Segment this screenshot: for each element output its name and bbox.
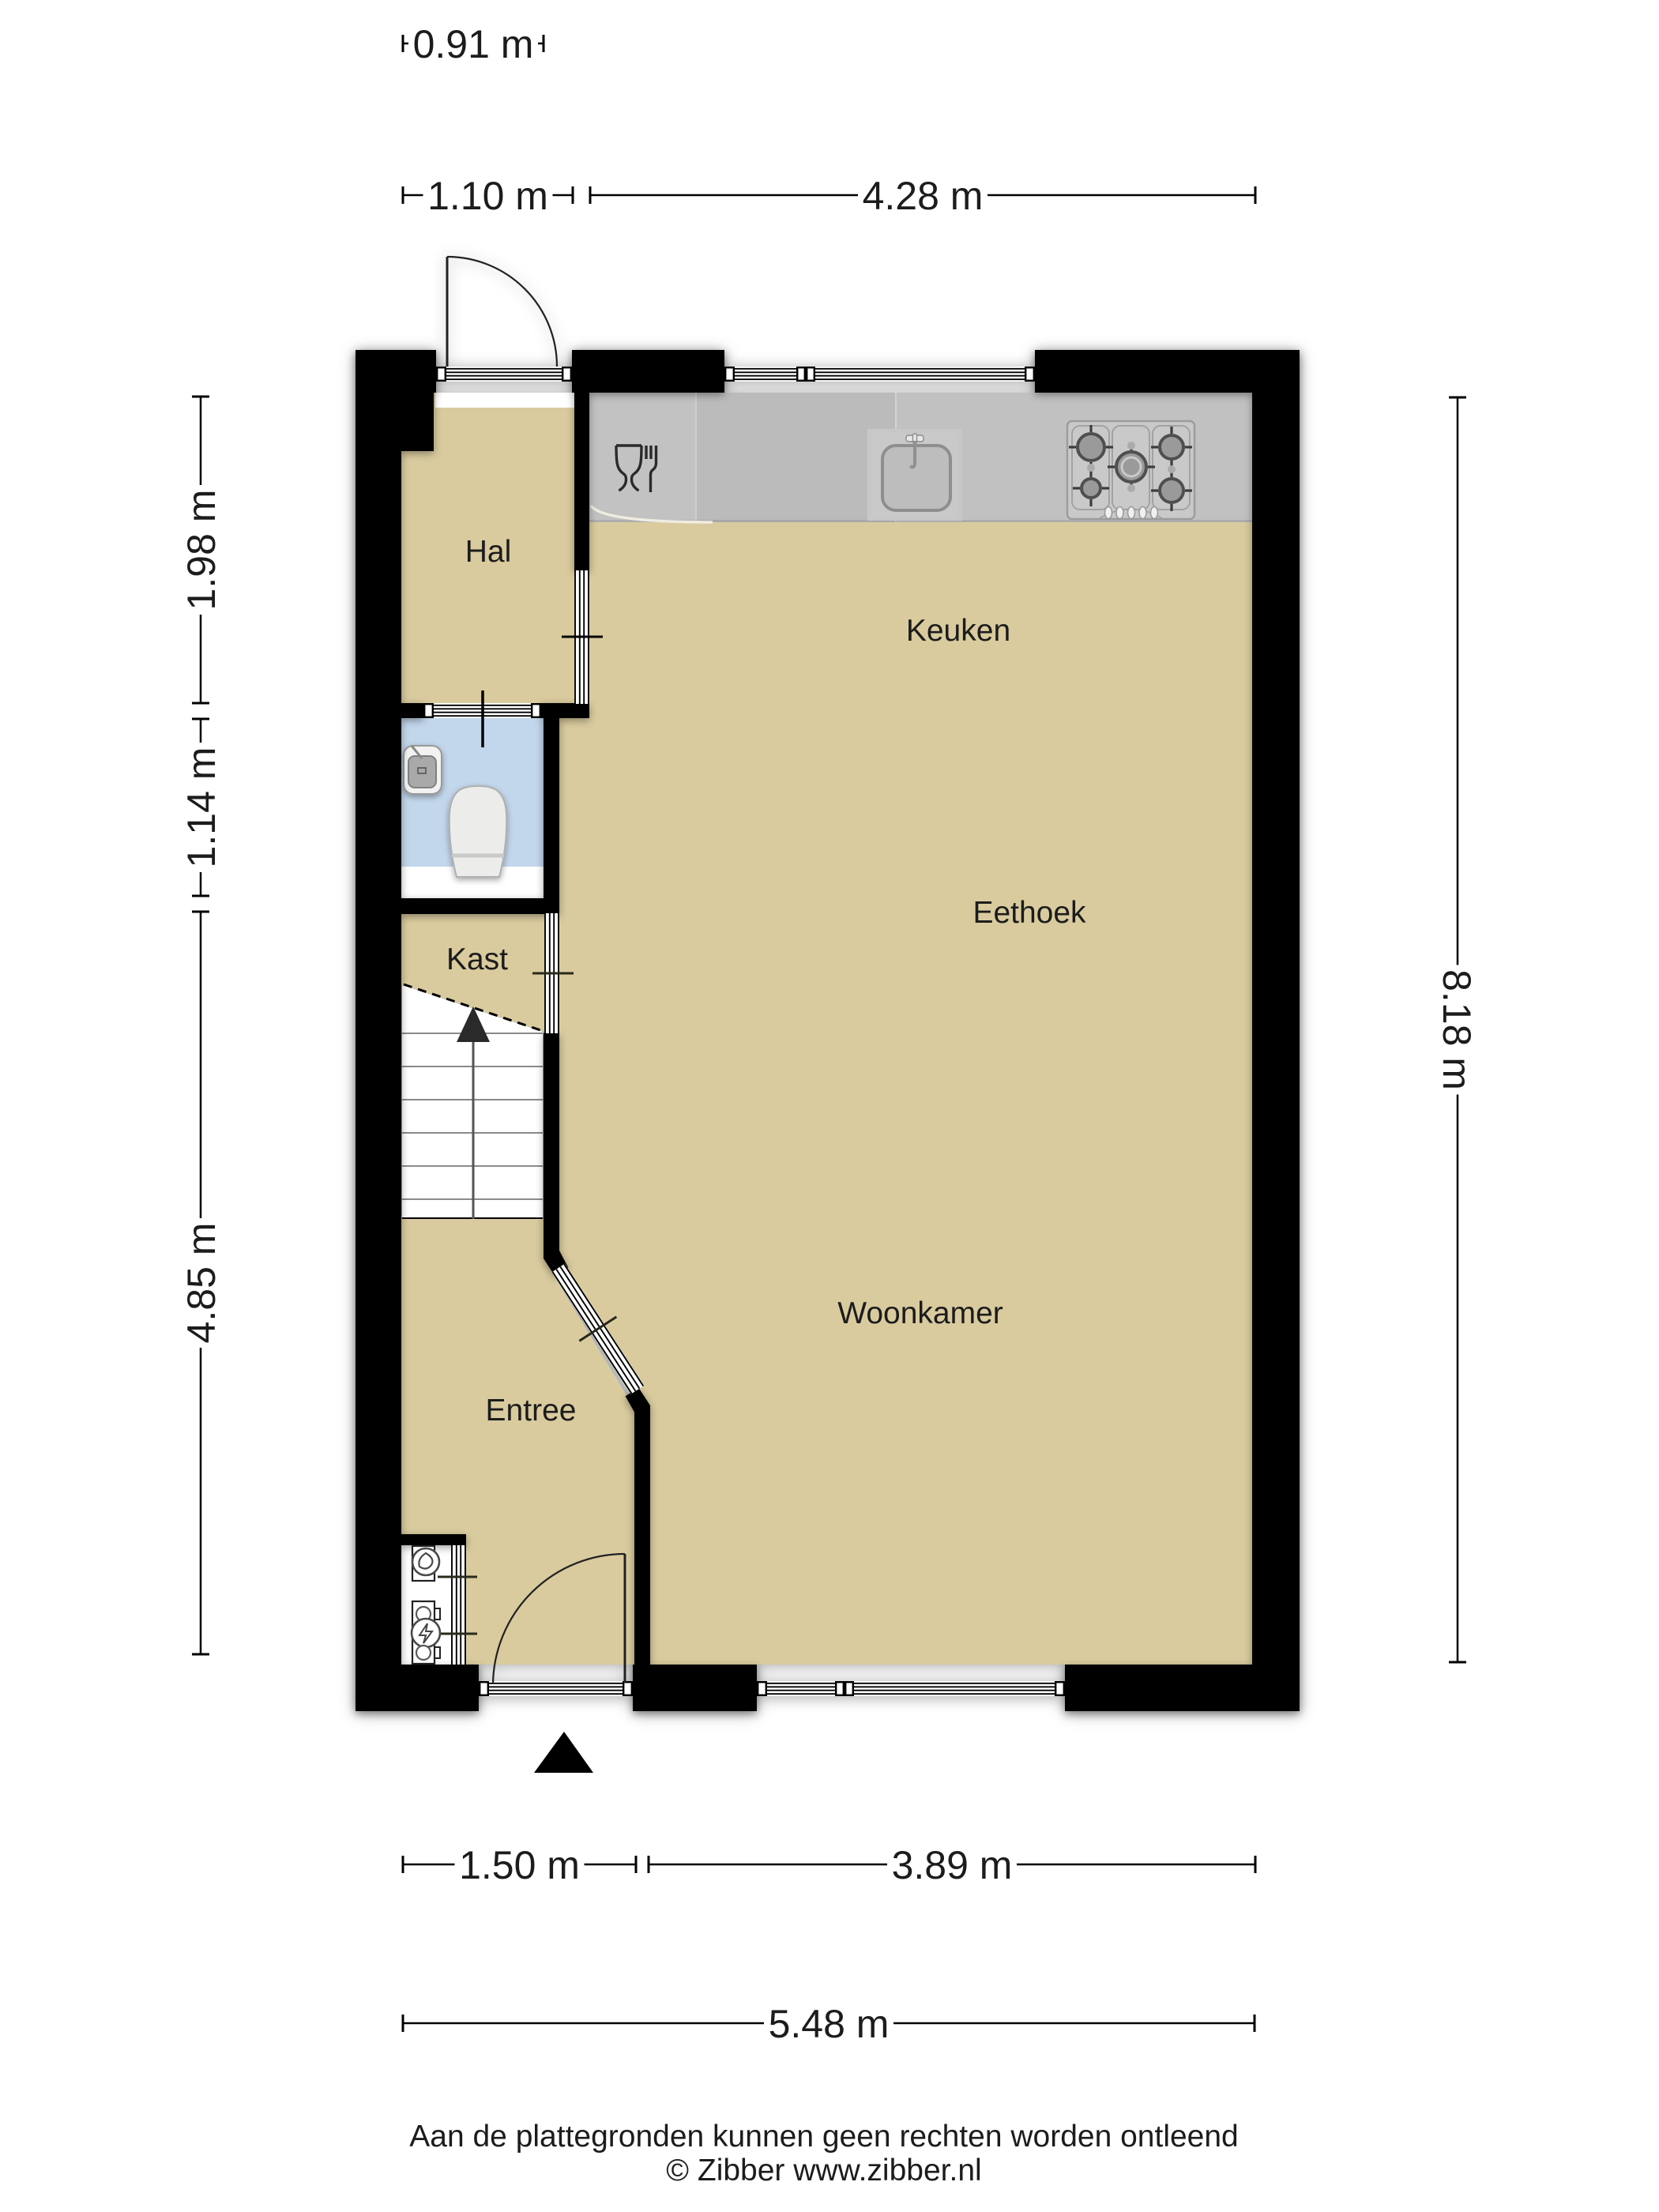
- svg-text:Aan de plattegronden kunnen ge: Aan de plattegronden kunnen geen rechten…: [409, 2120, 1239, 2154]
- svg-text:4.28 m: 4.28 m: [863, 174, 984, 218]
- svg-text:3.89 m: 3.89 m: [892, 1843, 1013, 1887]
- svg-text:Entree: Entree: [486, 1394, 577, 1428]
- svg-text:Eethoek: Eethoek: [972, 896, 1086, 930]
- svg-text:1.10 m: 1.10 m: [427, 174, 548, 218]
- svg-text:1.14 m: 1.14 m: [179, 747, 224, 868]
- svg-text:Kast: Kast: [446, 942, 508, 976]
- svg-text:Woonkamer: Woonkamer: [837, 1296, 1003, 1330]
- svg-text:5.48 m: 5.48 m: [769, 2002, 890, 2046]
- svg-text:© Zibber www.zibber.nl: © Zibber www.zibber.nl: [666, 2154, 981, 2188]
- svg-text:1.98 m: 1.98 m: [179, 490, 224, 611]
- svg-text:Hal: Hal: [465, 535, 512, 569]
- svg-text:4.85 m: 4.85 m: [179, 1223, 224, 1344]
- svg-text:Keuken: Keuken: [906, 614, 1010, 648]
- svg-text:1.50 m: 1.50 m: [459, 1843, 580, 1887]
- svg-text:8.18 m: 8.18 m: [1435, 969, 1479, 1090]
- svg-text:0.91 m: 0.91 m: [413, 22, 534, 66]
